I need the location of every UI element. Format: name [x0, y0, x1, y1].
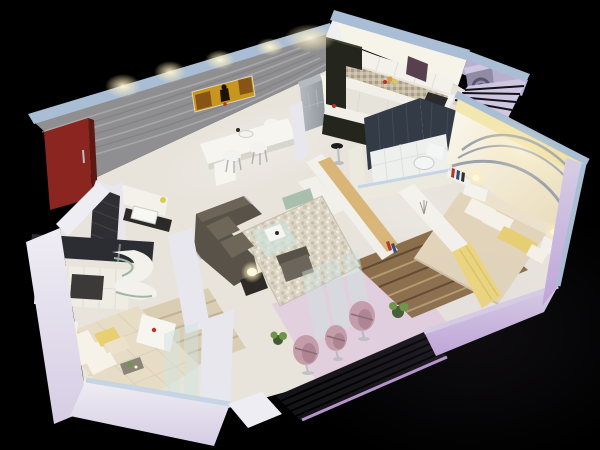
bar-stool-seat	[331, 143, 343, 149]
lamp-left-shade	[473, 175, 480, 181]
wardrobe-hanging-clothes	[70, 274, 104, 300]
door-handle	[83, 150, 84, 163]
tray-plant	[128, 362, 133, 367]
coffee-table-book	[275, 231, 279, 235]
master-side-wall	[200, 310, 234, 410]
spotlight-3	[205, 50, 235, 70]
spotlight-4	[256, 38, 284, 56]
artwork-red-shoe	[223, 102, 227, 106]
master-glass-pane-2	[184, 322, 198, 404]
table-decor	[236, 128, 240, 132]
soap-dish	[160, 197, 166, 203]
bench-flowers	[152, 328, 156, 332]
spotlight-1	[105, 74, 141, 98]
kitchen-ceiling-glow	[284, 24, 336, 52]
render-canvas	[0, 0, 600, 450]
fruit-orange	[387, 76, 392, 81]
toilet-bowl	[414, 157, 434, 170]
living-lamp-shade	[247, 268, 257, 276]
wine-bottle	[332, 104, 336, 108]
spotlight-2	[154, 61, 186, 83]
artwork-patch-right	[238, 77, 253, 95]
bar-stool-pole	[338, 148, 339, 162]
floor-plan-render	[0, 0, 600, 450]
fruit-red	[383, 80, 387, 84]
fruit-yellow	[393, 80, 397, 84]
dinner-plate	[239, 131, 253, 138]
tray-cup	[135, 366, 138, 369]
